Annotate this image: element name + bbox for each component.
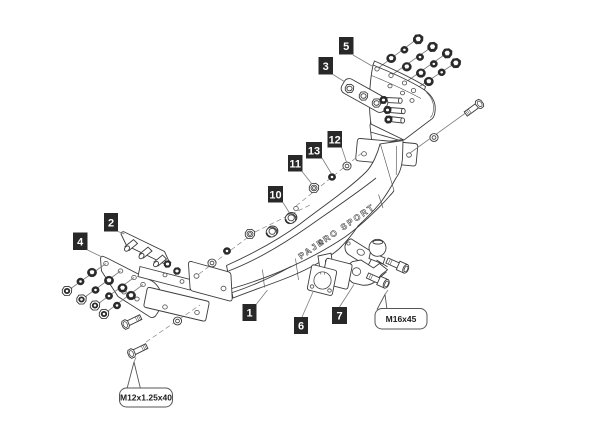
svg-text:7: 7: [336, 311, 342, 323]
svg-text:1: 1: [246, 308, 252, 320]
svg-text:6: 6: [298, 321, 304, 333]
svg-text:10: 10: [269, 190, 281, 202]
svg-text:11: 11: [289, 159, 301, 171]
svg-text:5: 5: [343, 41, 349, 53]
svg-text:13: 13: [308, 146, 320, 158]
svg-text:3: 3: [323, 61, 329, 73]
svg-text:M12x1.25x40: M12x1.25x40: [120, 393, 172, 403]
svg-text:2: 2: [108, 218, 114, 230]
svg-text:M16x45: M16x45: [386, 314, 417, 324]
svg-text:12: 12: [329, 135, 341, 147]
svg-text:4: 4: [77, 237, 84, 249]
